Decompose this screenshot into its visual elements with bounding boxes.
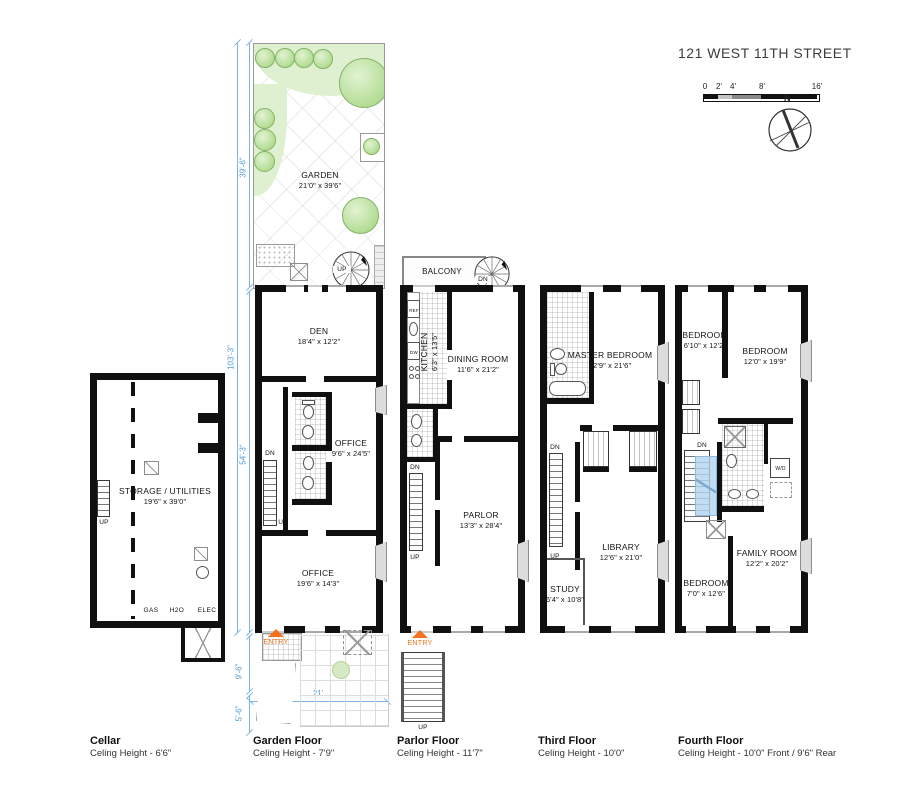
room-size: 6'10" x 12'2"	[676, 341, 734, 352]
room-name: OFFICE	[301, 438, 401, 449]
wall	[283, 387, 288, 530]
dim-label-lot-depth: 103'-3"	[227, 328, 236, 388]
library-label: LIBRARY 12'6" x 21'0"	[571, 542, 671, 563]
room-size: 12'9" x 21'6"	[560, 361, 660, 372]
window	[734, 285, 754, 293]
tree-icon	[255, 48, 275, 68]
window	[736, 625, 756, 633]
room-size: 13'3" x 28'4"	[431, 521, 531, 532]
cellar-stair	[97, 480, 110, 517]
dim-line-house-depth	[249, 291, 250, 633]
bay-window	[375, 542, 387, 582]
wall	[447, 292, 452, 350]
burner-icon	[409, 366, 414, 371]
compass-icon	[762, 102, 820, 158]
shrub-icon	[332, 661, 350, 679]
third-floor-footer-name: Third Floor	[538, 735, 596, 747]
wall	[438, 436, 452, 442]
garden-size: 21'0" x 39'6"	[268, 181, 372, 192]
stair	[549, 453, 563, 547]
closet	[629, 431, 657, 467]
room-name: LIBRARY	[571, 542, 671, 553]
burner-icon	[409, 374, 414, 379]
room-size: 12'0" x 19'9"	[735, 357, 795, 368]
stair-dn-label: DN	[407, 464, 423, 471]
bathtub-icon	[549, 381, 586, 396]
window	[621, 285, 641, 293]
toilet-icon	[726, 454, 737, 468]
entry-arrow-icon	[268, 629, 284, 637]
parlor-floor-plan: REF DW KITCHEN 6'3" x 13'5" DINING ROOM …	[400, 285, 525, 633]
toilet-icon	[411, 414, 422, 429]
wall	[326, 530, 376, 536]
parlor-floor-footer-name: Parlor Floor	[397, 735, 459, 747]
boiler-icon	[196, 566, 209, 579]
wall	[464, 436, 518, 442]
window	[565, 625, 589, 633]
garden-door	[308, 285, 322, 293]
stoop-stair	[401, 652, 445, 722]
room-name: BEDROOM	[676, 578, 736, 589]
wall	[547, 398, 594, 404]
cellar-plan: STORAGE / UTILITIES 19'6" x 39'0" UP GAS…	[90, 373, 225, 628]
bay-window	[800, 538, 812, 574]
dim-label-garden-depth: 39'-6"	[239, 138, 248, 198]
window	[766, 285, 788, 293]
cellar-footer-ceiling: Celing Height - 6'6"	[90, 748, 171, 759]
sink-icon	[746, 489, 759, 499]
closet	[583, 431, 609, 467]
toilet-icon	[303, 405, 314, 419]
room-name: KITCHEN	[419, 317, 430, 387]
wall	[589, 292, 594, 398]
room-name: OFFICE	[268, 568, 368, 579]
third-floor-footer-ceiling: Celing Height - 10'0"	[538, 748, 625, 759]
scale-tick-2: 2'	[712, 82, 726, 91]
dim-label-house-depth: 54'-3"	[239, 425, 248, 485]
shower-icon	[724, 426, 746, 448]
yard-hatch	[343, 630, 372, 655]
garden-floor-footer-name: Garden Floor	[253, 735, 322, 747]
garden-name: GARDEN	[268, 170, 372, 181]
garden-area: GARDEN 21'0" x 39'6" UP	[253, 43, 385, 289]
office-rear-label: OFFICE 9'6" x 24'5"	[301, 438, 401, 459]
room-size: 11'6" x 21'2"	[428, 365, 528, 376]
tree-icon	[275, 48, 295, 68]
room-size: 9'6" x 24'5"	[301, 449, 401, 460]
room-size: 7'0" x 12'6"	[676, 589, 736, 600]
tree-icon	[342, 197, 379, 234]
large-tree-icon	[339, 58, 385, 108]
room-size: 18'4" x 12'2"	[269, 337, 369, 348]
linen-closet	[770, 482, 792, 498]
garden-floor-entry-label: ENTRY	[256, 639, 296, 646]
tree-icon	[313, 49, 333, 69]
bedroom-front-label: BEDROOM 7'0" x 12'6"	[676, 578, 736, 599]
room-name: BEDROOM	[735, 346, 795, 357]
room-name: MASTER BEDROOM	[560, 350, 660, 361]
utility-hatch	[194, 547, 208, 561]
wall	[447, 380, 452, 404]
bay-window	[657, 342, 669, 384]
pavers-hatch	[290, 263, 308, 281]
wall	[435, 442, 440, 500]
tree-icon	[254, 108, 275, 129]
tree-icon	[254, 129, 276, 151]
wall	[262, 376, 306, 382]
closet	[682, 380, 700, 405]
page-title: 121 WEST 11TH STREET	[678, 45, 852, 61]
sink-icon	[409, 322, 418, 336]
room-size: 6'3" x 13'5"	[430, 317, 441, 387]
stair-up-label: UP	[407, 554, 423, 561]
room-size: 19'6" x 39'0"	[115, 497, 215, 508]
window	[493, 285, 513, 293]
wall	[718, 506, 764, 512]
washer-dryer: W/D	[770, 458, 790, 478]
fourth-floor-plan: BEDROOM 6'10" x 12'2" BEDROOM 12'0" x 19…	[675, 285, 808, 633]
cellar-bulkhead	[181, 628, 225, 662]
room-name: STORAGE / UTILITIES	[115, 486, 215, 497]
cellar-footer-name: Cellar	[90, 735, 121, 747]
sink-icon	[411, 434, 422, 447]
balcony-label: BALCONY	[404, 267, 480, 278]
ref-label: REF	[408, 307, 420, 314]
sink-icon	[302, 425, 314, 439]
bay-window	[517, 540, 529, 582]
room-size: 19'6" x 14'3"	[268, 579, 368, 590]
dim-line-front-yard	[249, 636, 250, 692]
room-name: DEN	[269, 326, 369, 337]
wall	[262, 530, 308, 536]
scale-tick-16: 16'	[810, 82, 824, 91]
den-label: DEN 18'4" x 12'2"	[269, 326, 369, 347]
cellar-up-label: UP	[97, 519, 111, 526]
window	[328, 285, 346, 293]
window	[483, 625, 505, 633]
window	[770, 625, 790, 633]
bedroom-rear-small-label: BEDROOM 6'10" x 12'2"	[676, 330, 734, 351]
dim-line-lot-depth	[237, 42, 238, 633]
study-label: STUDY 6'4" x 10'8"	[543, 584, 587, 605]
bay-window	[657, 540, 669, 582]
office-front-label: OFFICE 19'6" x 14'3"	[268, 568, 368, 589]
tree-icon	[294, 48, 314, 68]
window	[686, 625, 706, 633]
tree-icon	[254, 151, 275, 172]
wall	[324, 376, 376, 382]
wall	[198, 413, 218, 423]
stoop-up-label: UP	[413, 724, 433, 731]
wall	[407, 457, 438, 462]
dining-room-label: DINING ROOM 11'6" x 21'2"	[428, 354, 528, 375]
room-name: PARLOR	[431, 510, 531, 521]
entry-arrow-icon	[412, 630, 428, 638]
dim-line-garden-depth	[249, 42, 250, 288]
parlor-floor-entry-label: ENTRY	[400, 640, 440, 647]
garden-label: GARDEN 21'0" x 39'6"	[268, 170, 372, 191]
stair-dn-label: DN	[547, 444, 563, 451]
stair-dn-label: DN	[262, 450, 278, 457]
stair-dn-label: DN	[694, 442, 710, 449]
room-size: 6'4" x 10'8"	[543, 595, 587, 606]
garden-floor-vestibule	[262, 633, 302, 661]
stair-down	[263, 460, 277, 526]
parlor-floor-footer-ceiling: Celing Height - 11'7"	[397, 748, 483, 759]
window	[305, 625, 325, 633]
wall	[326, 462, 332, 505]
bedroom-rear-label: BEDROOM 12'0" x 19'9"	[735, 346, 795, 367]
room-size: 12'6" x 21'0"	[571, 553, 671, 564]
planter-shrub-icon	[363, 138, 380, 155]
front-yard-planting-bed	[256, 660, 296, 724]
master-bedroom-label: MASTER BEDROOM 12'9" x 21'6"	[560, 350, 660, 371]
room-name: STUDY	[543, 584, 587, 595]
wall	[764, 424, 768, 464]
garden-spiral-up-label: UP	[333, 266, 351, 273]
sink-icon	[302, 476, 314, 490]
refrigerator: REF	[407, 300, 420, 318]
scale-tick-4: 4'	[726, 82, 740, 91]
wall	[629, 467, 657, 472]
elec-label: ELEC	[187, 607, 227, 614]
room-name: BEDROOM	[676, 330, 734, 341]
garden-floor-footer-ceiling: Celing Height - 7'9"	[253, 748, 334, 759]
window	[688, 285, 708, 293]
room-name: DINING ROOM	[428, 354, 528, 365]
sink-icon	[728, 489, 741, 499]
bay-window	[800, 340, 812, 382]
window	[451, 625, 471, 633]
third-floor-plan: MASTER BEDROOM 12'9" x 21'6" DN UP LIBRA…	[540, 285, 665, 633]
wall	[198, 443, 218, 453]
balcony-spiral-dn-label: DN	[475, 276, 491, 283]
floorplan-sheet: 121 WEST 11TH STREET 0 2' 4' 8' 16' N 10…	[0, 0, 900, 790]
scale-tick-8: 8'	[755, 82, 769, 91]
kitchen-label: KITCHEN 6'3" x 13'5"	[419, 317, 439, 387]
scale-tick-0: 0	[698, 82, 712, 91]
closet	[682, 409, 700, 434]
brick-step	[374, 245, 385, 289]
window	[286, 285, 304, 293]
stair	[409, 473, 423, 551]
bay-window	[375, 385, 387, 415]
closet-hatch	[706, 520, 726, 539]
fourth-floor-footer-ceiling: Celing Height - 10'0" Front / 9'6" Rear	[678, 748, 836, 759]
storage-utilities-label: STORAGE / UTILITIES 19'6" x 39'0"	[115, 486, 215, 507]
wall	[583, 467, 609, 472]
scale-bar-rule	[703, 94, 820, 102]
fourth-floor-footer-name: Fourth Floor	[678, 735, 743, 747]
stair-skylight	[695, 456, 717, 516]
window	[611, 625, 635, 633]
partition-wall	[547, 558, 585, 560]
wd-label: W/D	[771, 466, 790, 473]
dim-label-stoop: 5'-6"	[235, 686, 244, 742]
parlor-label: PARLOR 13'3" x 28'4"	[431, 510, 531, 531]
garden-floor-plan: DEN 18'4" x 12'2" DN UP OFFICE 9'6" x 24…	[255, 285, 383, 633]
utility-hatch	[144, 461, 159, 475]
wall	[575, 442, 580, 502]
